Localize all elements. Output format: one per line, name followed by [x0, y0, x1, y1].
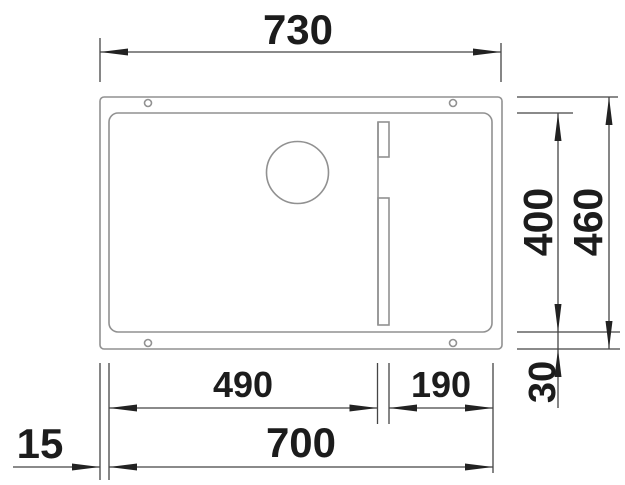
- label-overall-depth: 460: [565, 188, 611, 256]
- drain-hole: [267, 142, 329, 204]
- technical-drawing-page: 730 400 460 30 490 190 700 15: [0, 0, 625, 485]
- arrow-bowl-depth-bottom: [555, 304, 562, 332]
- arrow-bowl-width-right: [465, 464, 493, 471]
- mounting-hole-bottom-left: [145, 340, 152, 347]
- arrow-bowl-depth-top: [555, 113, 562, 141]
- dimension-labels: 730 400 460 30 490 190 700 15: [17, 6, 611, 467]
- label-bottom-edge: 30: [522, 361, 564, 403]
- sink-bowl-edge: [109, 113, 492, 332]
- label-bowl-section-right: 190: [411, 364, 471, 405]
- mounting-hole-top-left: [145, 100, 152, 107]
- sink-dimension-drawing: 730 400 460 30 490 190 700 15: [0, 0, 625, 485]
- arrow-side-edge: [72, 464, 100, 471]
- rail-segment-top: [378, 122, 389, 157]
- rail-segment-bottom: [378, 198, 389, 325]
- sink-outer-rim: [100, 97, 502, 349]
- level-rail: [378, 122, 389, 325]
- arrow-section-left-b: [350, 405, 378, 412]
- label-bowl-depth: 400: [515, 188, 561, 256]
- label-bowl-width: 700: [266, 419, 336, 466]
- dimension-lines: [13, 52, 609, 467]
- extension-lines: [100, 38, 620, 480]
- label-side-edge: 15: [17, 420, 64, 467]
- arrowheads: [72, 49, 613, 471]
- arrow-bowl-width-left: [109, 464, 137, 471]
- label-bowl-section-left: 490: [213, 364, 273, 405]
- mounting-hole-bottom-right: [450, 340, 457, 347]
- mounting-hole-top-right: [450, 100, 457, 107]
- arrow-overall-depth-top: [606, 97, 613, 125]
- arrow-section-right-b: [465, 405, 493, 412]
- arrow-section-left-a: [109, 405, 137, 412]
- label-overall-width: 730: [263, 6, 333, 53]
- arrow-overall-width-left: [100, 49, 128, 56]
- sink-outline-group: [100, 97, 502, 349]
- arrow-overall-depth-bottom: [606, 321, 613, 349]
- arrow-section-right-a: [389, 405, 417, 412]
- arrow-overall-width-right: [473, 49, 501, 56]
